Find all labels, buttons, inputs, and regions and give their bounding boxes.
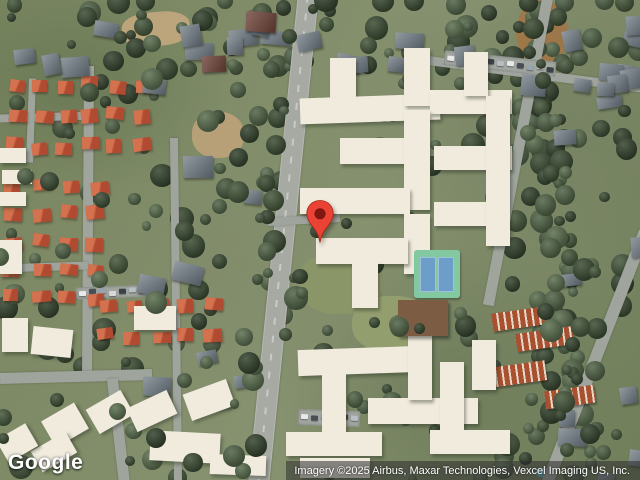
map-viewport: Google Imagery ©2025 Airbus, Maxar Techn… bbox=[0, 0, 640, 480]
attribution-text: Imagery ©2025 Airbus, Maxar Technologies… bbox=[294, 465, 630, 477]
tree-canopy bbox=[549, 114, 562, 127]
apartment-building bbox=[322, 374, 346, 434]
red-roof bbox=[133, 109, 150, 124]
tree-canopy bbox=[523, 18, 544, 39]
red-roof bbox=[32, 208, 51, 223]
house-roof bbox=[60, 56, 89, 78]
red-roof bbox=[106, 106, 125, 120]
tree-canopy bbox=[266, 135, 286, 155]
tree-canopy bbox=[322, 325, 333, 336]
house-roof bbox=[245, 11, 276, 33]
tree-canopy bbox=[599, 192, 609, 202]
red-roof bbox=[58, 291, 75, 304]
tennis-court bbox=[414, 250, 460, 298]
red-roof bbox=[32, 233, 50, 247]
tree-canopy bbox=[568, 287, 578, 297]
car bbox=[129, 287, 136, 292]
apartment-building bbox=[408, 336, 432, 400]
tree-canopy bbox=[390, 317, 410, 337]
tree-canopy bbox=[276, 0, 291, 15]
house-roof bbox=[626, 16, 640, 36]
red-roof bbox=[58, 81, 74, 95]
tree-canopy bbox=[125, 456, 135, 466]
tree-canopy bbox=[180, 61, 197, 78]
tree-canopy bbox=[80, 83, 99, 102]
tree-canopy bbox=[372, 0, 393, 12]
tree-canopy bbox=[562, 365, 571, 374]
tree-canopy bbox=[547, 274, 566, 293]
tree-canopy bbox=[245, 434, 268, 457]
tree-canopy bbox=[0, 409, 12, 426]
tree-canopy bbox=[235, 328, 252, 345]
tree-canopy bbox=[596, 445, 611, 460]
apartment-building bbox=[404, 48, 430, 106]
red-roof bbox=[80, 108, 98, 123]
red-roof bbox=[123, 332, 139, 345]
house-roof bbox=[394, 32, 423, 49]
car bbox=[301, 414, 308, 419]
house-roof bbox=[573, 78, 592, 94]
tree-canopy bbox=[214, 163, 225, 174]
tree-canopy bbox=[565, 211, 576, 222]
tree-canopy bbox=[212, 199, 227, 214]
tree-canopy bbox=[616, 138, 638, 160]
tree-canopy bbox=[212, 254, 227, 269]
tree-canopy bbox=[217, 0, 232, 9]
tree-canopy bbox=[592, 120, 610, 138]
car bbox=[497, 60, 504, 66]
tree-canopy bbox=[554, 216, 564, 226]
tree-canopy bbox=[103, 51, 123, 71]
pin-dot bbox=[314, 208, 325, 219]
tree-canopy bbox=[585, 361, 605, 381]
red-roof bbox=[35, 110, 53, 123]
tree-canopy bbox=[109, 254, 128, 273]
red-roof bbox=[59, 263, 78, 276]
apartment-building bbox=[472, 340, 496, 390]
tree-canopy bbox=[553, 391, 574, 412]
tree-canopy bbox=[91, 271, 108, 288]
tree-canopy bbox=[136, 10, 147, 21]
tree-canopy bbox=[230, 399, 240, 409]
tree-canopy bbox=[319, 17, 335, 33]
car bbox=[351, 416, 358, 421]
apartment-building bbox=[430, 430, 510, 454]
pin-glyph bbox=[305, 199, 335, 245]
red-roof bbox=[62, 181, 79, 193]
red-roof bbox=[9, 109, 27, 122]
tree-canopy bbox=[536, 59, 546, 69]
tree-canopy bbox=[7, 13, 16, 22]
apartment-building bbox=[352, 262, 378, 308]
tree-canopy bbox=[177, 373, 192, 388]
tree-canopy bbox=[227, 181, 249, 203]
apartment-building bbox=[0, 148, 26, 163]
tree-canopy bbox=[64, 128, 75, 139]
tree-canopy bbox=[107, 0, 130, 14]
house-roof bbox=[227, 37, 244, 56]
tree-canopy bbox=[67, 40, 77, 50]
red-roof bbox=[32, 142, 49, 156]
tree-canopy bbox=[463, 22, 472, 31]
apartment-building bbox=[440, 362, 464, 432]
red-roof bbox=[132, 137, 151, 152]
house-roof bbox=[561, 28, 583, 53]
red-roof bbox=[4, 207, 23, 221]
tennis-court-surface bbox=[420, 257, 436, 292]
tree-canopy bbox=[505, 276, 520, 291]
house-roof bbox=[183, 155, 213, 177]
red-roof bbox=[109, 80, 126, 95]
house-roof bbox=[387, 56, 405, 73]
tree-canopy bbox=[540, 319, 563, 342]
tree-canopy bbox=[549, 8, 567, 26]
car bbox=[311, 416, 318, 421]
tree-canopy bbox=[258, 242, 277, 261]
tree-canopy bbox=[571, 317, 591, 337]
car bbox=[487, 59, 494, 65]
tree-canopy bbox=[481, 5, 497, 21]
red-roof bbox=[177, 328, 193, 342]
red-roof bbox=[82, 137, 100, 150]
red-roof bbox=[177, 298, 194, 312]
tree-canopy bbox=[183, 453, 203, 473]
tree-canopy bbox=[149, 204, 164, 219]
tree-canopy bbox=[175, 221, 195, 241]
pin-body bbox=[307, 201, 333, 243]
house-roof bbox=[631, 236, 640, 257]
apartment-building bbox=[464, 52, 488, 96]
tree-canopy bbox=[527, 393, 537, 403]
apartment-building bbox=[486, 96, 510, 246]
tree-canopy bbox=[341, 218, 352, 229]
tree-canopy bbox=[608, 37, 630, 59]
house-roof bbox=[553, 129, 576, 145]
red-roof bbox=[205, 298, 224, 311]
tree-canopy bbox=[238, 352, 260, 374]
red-roof bbox=[203, 329, 222, 343]
apartment-building bbox=[31, 326, 74, 358]
house-roof bbox=[13, 48, 36, 66]
tree-canopy bbox=[142, 221, 152, 231]
tree-canopy bbox=[145, 291, 168, 314]
tree-canopy bbox=[292, 269, 307, 284]
tree-canopy bbox=[537, 303, 554, 320]
tree-canopy bbox=[360, 37, 377, 54]
tree-canopy bbox=[263, 61, 280, 78]
tree-canopy bbox=[257, 48, 270, 61]
tree-canopy bbox=[347, 391, 363, 407]
tree-canopy bbox=[105, 119, 121, 135]
tree-canopy bbox=[191, 313, 207, 329]
tree-canopy bbox=[565, 337, 580, 352]
red-roof bbox=[9, 79, 26, 92]
house-roof bbox=[597, 83, 614, 96]
red-roof bbox=[96, 327, 113, 340]
tree-canopy bbox=[200, 214, 212, 226]
road bbox=[0, 369, 152, 384]
house-roof bbox=[619, 386, 638, 405]
red-roof bbox=[32, 80, 47, 92]
red-roof bbox=[100, 300, 118, 313]
tree-canopy bbox=[540, 238, 560, 258]
car bbox=[447, 56, 454, 62]
house-roof bbox=[180, 24, 204, 48]
red-roof bbox=[3, 289, 18, 301]
tree-canopy bbox=[520, 125, 536, 141]
tree-canopy bbox=[200, 356, 213, 369]
attribution-bar: Imagery ©2025 Airbus, Maxar Technologies… bbox=[286, 461, 640, 480]
tree-canopy bbox=[555, 185, 575, 205]
tree-canopy bbox=[143, 35, 160, 52]
tree-canopy bbox=[263, 190, 284, 211]
apartment-building bbox=[183, 379, 236, 421]
car bbox=[79, 291, 86, 296]
tree-canopy bbox=[559, 166, 571, 178]
car bbox=[109, 291, 116, 296]
red-roof bbox=[32, 290, 52, 303]
tree-canopy bbox=[404, 0, 424, 11]
tree-canopy bbox=[279, 328, 292, 341]
apartment-building bbox=[298, 346, 419, 376]
tree-canopy bbox=[580, 424, 600, 444]
tree-canopy bbox=[545, 42, 560, 57]
tree-canopy bbox=[128, 193, 141, 206]
tree-canopy bbox=[7, 0, 23, 13]
red-roof bbox=[55, 142, 73, 155]
red-roof bbox=[60, 109, 77, 123]
car bbox=[507, 61, 514, 67]
tree-canopy bbox=[454, 307, 467, 320]
tree-canopy bbox=[369, 317, 380, 328]
tennis-court-surface bbox=[438, 257, 454, 292]
apartment-building bbox=[2, 318, 28, 352]
red-roof bbox=[34, 264, 52, 277]
tree-canopy bbox=[249, 106, 269, 126]
tree-canopy bbox=[595, 0, 614, 10]
tree-canopy bbox=[0, 433, 9, 443]
tree-canopy bbox=[40, 172, 59, 191]
tree-canopy bbox=[535, 72, 551, 88]
house-roof bbox=[41, 53, 62, 77]
tree-canopy bbox=[282, 29, 297, 44]
red-roof bbox=[153, 332, 171, 344]
tree-canopy bbox=[55, 243, 71, 259]
red-roof bbox=[61, 205, 79, 220]
tree-canopy bbox=[611, 429, 622, 440]
tree-canopy bbox=[558, 58, 574, 74]
tree-canopy bbox=[618, 105, 630, 117]
car bbox=[546, 67, 553, 73]
google-logo[interactable]: Google bbox=[8, 451, 83, 475]
apartment-building bbox=[0, 192, 26, 206]
car bbox=[119, 288, 126, 293]
tree-canopy bbox=[555, 410, 565, 420]
house-roof bbox=[202, 55, 227, 72]
tree-canopy bbox=[279, 106, 288, 115]
car bbox=[527, 65, 534, 71]
red-roof bbox=[85, 238, 104, 252]
tree-canopy bbox=[589, 266, 601, 278]
apartment-building bbox=[286, 432, 382, 456]
red-roof bbox=[106, 139, 122, 153]
tree-canopy bbox=[50, 393, 64, 407]
apartment-building bbox=[340, 138, 412, 164]
tree-canopy bbox=[296, 287, 308, 299]
tree-canopy bbox=[496, 30, 510, 44]
tree-canopy bbox=[94, 192, 110, 208]
tree-canopy bbox=[146, 428, 166, 448]
tree-canopy bbox=[230, 82, 245, 97]
tree-canopy bbox=[615, 0, 634, 12]
tree-canopy bbox=[543, 165, 560, 182]
tree-canopy bbox=[582, 28, 602, 48]
tree-canopy bbox=[560, 443, 574, 457]
car bbox=[517, 63, 524, 69]
tree-canopy bbox=[197, 110, 219, 132]
tree-canopy bbox=[446, 0, 466, 15]
apartment-building bbox=[127, 390, 178, 432]
tree-canopy bbox=[114, 31, 127, 44]
map-pin-icon[interactable] bbox=[305, 199, 335, 245]
tree-canopy bbox=[229, 148, 248, 167]
tree-canopy bbox=[535, 194, 557, 216]
tree-canopy bbox=[240, 124, 260, 144]
